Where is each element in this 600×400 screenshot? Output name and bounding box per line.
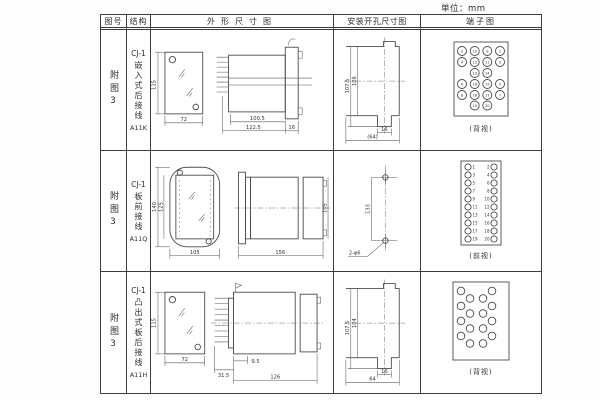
terminal-circle <box>491 179 497 185</box>
terminal-circle <box>479 295 487 303</box>
terminal-circle <box>457 317 465 325</box>
terminal-drawing-row3: (背视) <box>421 272 541 393</box>
terminal-circle <box>465 235 471 241</box>
dim-label: 100.5 <box>250 115 265 121</box>
outline-svg-row1: 115 72 100.5 <box>151 30 333 151</box>
terminal-svg-row1: (背视) 2109141211313146161558181771920 <box>421 30 541 151</box>
terminal-circle <box>457 332 465 340</box>
dim-label: 105 <box>323 203 329 213</box>
dim-label: 122.5 <box>246 124 261 130</box>
terminal-number: 5 <box>499 82 501 86</box>
dim-label: 72 <box>182 357 189 363</box>
dim-label: 16 <box>381 127 388 133</box>
install-drawing-row2: 133 2-φ6 <box>334 151 421 272</box>
outline-drawing-row2: 140 125 105 <box>151 151 334 272</box>
terminal-circle <box>465 211 471 217</box>
install-drawing-row1: 107.5 106 16 (64) <box>334 30 421 151</box>
terminal-number: 2 <box>461 49 463 53</box>
dim-label: 156 <box>275 249 285 255</box>
terminal-circle <box>491 163 497 169</box>
header-outline-dims: 外形尺寸图 <box>151 15 334 30</box>
structure-row3: CJ-1 凸出式板后接线 A11H <box>127 272 151 393</box>
terminal-circle <box>488 287 496 295</box>
terminal-number: 3 <box>499 60 501 64</box>
terminal-number: 4 <box>487 172 490 177</box>
terminal-circle <box>488 317 496 325</box>
terminal-number: 16 <box>472 82 477 86</box>
terminal-circle <box>488 332 496 340</box>
model-code: A11K <box>130 124 147 132</box>
dim-label: 16 <box>288 124 295 130</box>
terminal-circle <box>465 203 471 209</box>
fig-no-row1: 附图3 <box>101 30 127 151</box>
install-drawing-row3: 107.5 104 16 64 <box>334 272 421 393</box>
terminal-number: 1 <box>499 49 501 53</box>
terminal-circle <box>491 195 497 201</box>
terminal-circle <box>491 187 497 193</box>
view-label: (前视) <box>469 251 492 260</box>
wiring-type-label: 凸出式板后接线 <box>133 298 144 368</box>
header-structure: 结构 <box>127 15 151 30</box>
terminal-circle <box>466 340 474 348</box>
terminal-number: 6 <box>487 180 490 185</box>
terminal-circle <box>479 310 487 318</box>
terminal-number: 20 <box>484 236 490 241</box>
terminal-number: 17 <box>485 93 490 97</box>
dim-label: 16 <box>381 369 388 375</box>
terminal-circle <box>491 227 497 233</box>
outline-svg-row3: 115 72 9.5 <box>151 272 333 393</box>
terminal-number: 10 <box>484 196 490 201</box>
terminal-number: 2 <box>487 164 490 169</box>
terminal-number: 14 <box>485 71 490 75</box>
terminal-circle <box>457 287 465 295</box>
terminal-drawing-row2: (前视) 1234567891011121314151617181920 <box>421 151 541 272</box>
header-install-dims: 安装开孔尺寸图 <box>334 15 421 30</box>
dim-label: 104 <box>352 318 358 328</box>
model-label: CJ-1 <box>131 49 146 58</box>
terminal-circle <box>466 310 474 318</box>
terminal-circle <box>488 302 496 310</box>
dimension-table: 图号 结构 外形尺寸图 安装开孔尺寸图 端子图 附图3 CJ-1 嵌入式后接线 … <box>100 14 542 394</box>
terminal-circle <box>466 295 474 303</box>
terminal-number: 18 <box>472 93 477 97</box>
wiring-type-label: 嵌入式后接线 <box>133 61 144 121</box>
model-label: CJ-1 <box>131 180 146 189</box>
dim-label: 9.5 <box>251 359 259 365</box>
fig-no-row2: 附图3 <box>101 151 127 272</box>
terminal-number: 7 <box>499 93 501 97</box>
view-label: (背视) <box>469 367 492 376</box>
terminal-number: 13 <box>472 71 477 75</box>
terminal-circle <box>466 325 474 333</box>
terminal-circle <box>479 340 487 348</box>
terminal-number: 13 <box>473 212 479 217</box>
dim-label: 2-φ6 <box>349 250 361 256</box>
unit-label: 单位：mm <box>441 2 486 14</box>
model-code: A11H <box>130 371 148 379</box>
structure-row2: CJ-1 板前接线 A11Q <box>127 151 151 272</box>
terminal-number: 15 <box>473 220 479 225</box>
terminal-number: 16 <box>484 220 490 225</box>
terminal-number: 15 <box>485 82 490 86</box>
dim-label: 72 <box>181 116 188 122</box>
terminal-number: 19 <box>473 236 479 241</box>
terminal-number: 20 <box>485 103 490 107</box>
terminal-number: 11 <box>473 204 479 209</box>
terminal-number: 4 <box>461 60 464 64</box>
dim-label: 125 <box>158 202 164 212</box>
terminal-circle <box>465 163 471 169</box>
terminal-circle <box>465 187 471 193</box>
terminal-number: 8 <box>461 93 464 97</box>
terminal-number: 5 <box>473 180 476 185</box>
terminal-number: 19 <box>472 103 477 107</box>
terminal-number: 12 <box>484 204 490 209</box>
terminal-svg-row3: (背视) <box>421 272 541 393</box>
terminal-circle <box>491 219 497 225</box>
terminal-circle <box>491 171 497 177</box>
header-terminal-diagram: 端子图 <box>421 15 541 30</box>
terminal-number: 6 <box>461 82 464 86</box>
dim-label: 64 <box>369 376 376 382</box>
dim-label: 126 <box>270 375 280 381</box>
dim-label: 31.5 <box>218 373 229 379</box>
dim-label: 107.5 <box>345 78 351 93</box>
terminal-number: 7 <box>473 188 476 193</box>
view-label: (背视) <box>469 124 492 133</box>
terminal-circle <box>465 171 471 177</box>
terminal-number: 11 <box>485 60 490 64</box>
terminal-number: 17 <box>473 228 479 233</box>
terminal-svg-row2: (前视) 1234567891011121314151617181920 <box>421 151 541 272</box>
terminal-number: 3 <box>473 172 476 177</box>
terminal-circle <box>465 219 471 225</box>
fig-no-row3: 附图3 <box>101 272 127 393</box>
outline-svg-row2: 140 125 105 <box>151 151 333 272</box>
terminal-number: 9 <box>486 49 489 53</box>
dim-label: 105 <box>190 249 200 255</box>
terminal-circle <box>457 302 465 310</box>
dim-label: 140 <box>152 202 158 212</box>
wiring-type-label: 板前接线 <box>133 192 144 232</box>
terminal-number: 1 <box>473 164 476 169</box>
terminal-circle <box>491 211 497 217</box>
terminal-number: 8 <box>487 188 490 193</box>
terminal-circle <box>465 227 471 233</box>
terminal-circle <box>465 195 471 201</box>
install-svg-row2: 133 2-φ6 <box>334 151 420 272</box>
terminal-number: 9 <box>473 196 476 201</box>
terminal-number: 10 <box>472 49 477 53</box>
datasheet-page: 单位：mm 图号 结构 外形尺寸图 安装开孔尺寸图 端子图 附图3 CJ-1 嵌… <box>0 0 600 400</box>
terminal-circle <box>491 203 497 209</box>
dim-label: 107.5 <box>345 321 351 336</box>
header-fig-no: 图号 <box>101 15 127 30</box>
terminal-circle <box>491 235 497 241</box>
install-svg-row1: 107.5 106 16 (64) <box>334 30 420 151</box>
dim-label: 106 <box>352 76 358 86</box>
dim-label: 115 <box>151 80 157 90</box>
dim-label: 133 <box>366 204 372 214</box>
terminal-number: 18 <box>484 228 490 233</box>
model-label: CJ-1 <box>131 286 146 295</box>
terminal-number: 14 <box>484 212 490 217</box>
outline-drawing-row3: 115 72 9.5 <box>151 272 334 393</box>
dim-label: 115 <box>151 318 157 328</box>
dim-label: (64) <box>367 134 378 140</box>
terminal-number: 12 <box>472 60 477 64</box>
install-svg-row3: 107.5 104 16 64 <box>334 272 420 393</box>
terminal-drawing-row1: (背视) 2109141211313146161558181771920 <box>421 30 541 151</box>
model-code: A11Q <box>130 235 148 243</box>
terminal-circle <box>479 325 487 333</box>
structure-row1: CJ-1 嵌入式后接线 A11K <box>127 30 151 151</box>
outline-drawing-row1: 115 72 100.5 <box>151 30 334 151</box>
terminal-circle <box>465 179 471 185</box>
